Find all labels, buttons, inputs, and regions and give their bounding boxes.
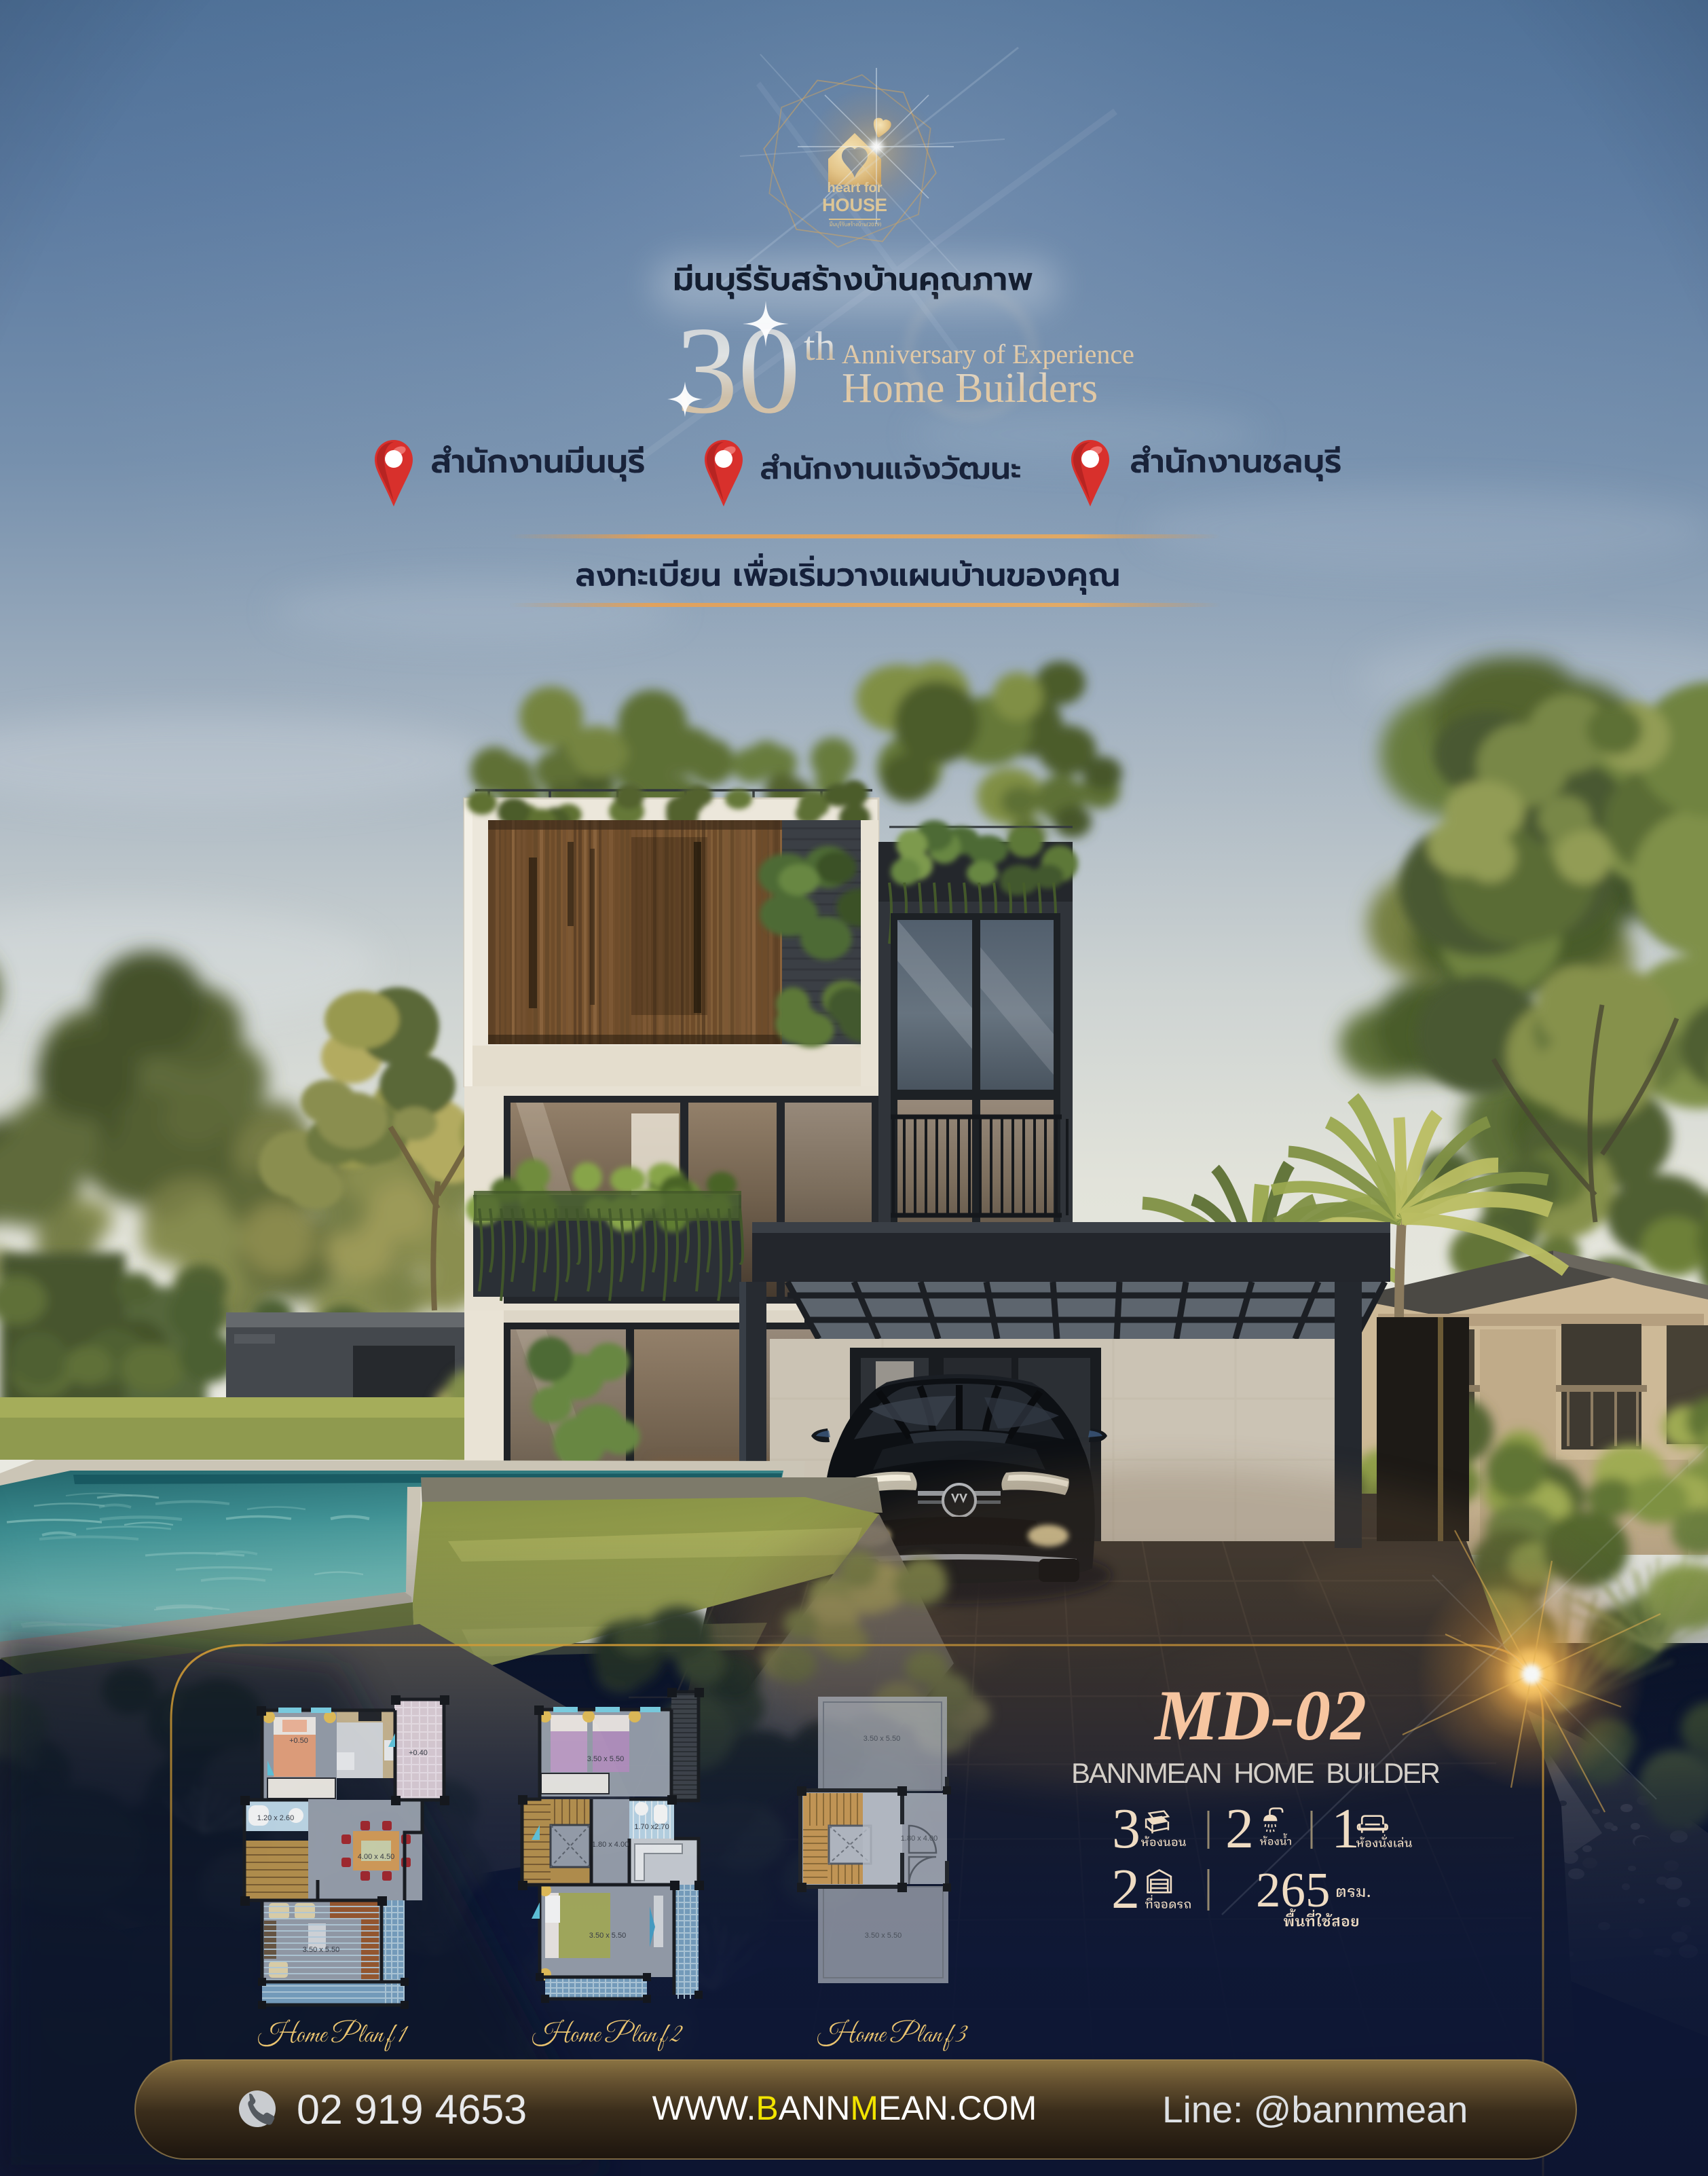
svg-text:WWW.BANNMEAN.COM: WWW.BANNMEAN.COM	[652, 2089, 1037, 2127]
svg-text:MD-02: MD-02	[1153, 1676, 1367, 1755]
svg-text:02 919 4653: 02 919 4653	[297, 2086, 527, 2133]
svg-text:30: 30	[675, 301, 800, 439]
svg-text:1.80 x 4.00: 1.80 x 4.00	[901, 1834, 937, 1843]
svg-text:3.50 x 5.50: 3.50 x 5.50	[303, 1946, 339, 1954]
svg-text:BANNMEAN HOME BUILDER: BANNMEAN HOME BUILDER	[1071, 1757, 1445, 1789]
svg-text:3: 3	[1112, 1797, 1140, 1860]
svg-text:3.50 x 5.50: 3.50 x 5.50	[865, 1932, 902, 1940]
svg-text:heart for: heart for	[827, 181, 882, 196]
svg-text:2: 2	[1225, 1797, 1254, 1860]
svg-text:1.70 x2.70: 1.70 x2.70	[634, 1823, 669, 1831]
svg-text:Line: @bannmean: Line: @bannmean	[1162, 2088, 1468, 2131]
svg-text:3.50 x 5.50: 3.50 x 5.50	[587, 1755, 624, 1763]
svg-text:1: 1	[1331, 1797, 1360, 1860]
svg-text:HOUSE: HOUSE	[822, 195, 887, 215]
svg-text:1.80 x 4.00: 1.80 x 4.00	[592, 1841, 629, 1849]
svg-text:265: 265	[1256, 1862, 1331, 1917]
svg-text:1.20 x 2.60: 1.20 x 2.60	[257, 1814, 294, 1822]
svg-text:+0.40: +0.40	[409, 1749, 428, 1757]
svg-text:3.50 x 5.50: 3.50 x 5.50	[589, 1932, 626, 1940]
svg-text:2: 2	[1111, 1858, 1140, 1921]
svg-text:+0.50: +0.50	[289, 1737, 308, 1745]
svg-text:th: th	[804, 324, 836, 369]
svg-text:3.50 x 5.50: 3.50 x 5.50	[864, 1735, 900, 1743]
svg-text:Home Builders: Home Builders	[842, 365, 1098, 411]
svg-text:4.00 x 4.50: 4.00 x 4.50	[358, 1853, 394, 1861]
